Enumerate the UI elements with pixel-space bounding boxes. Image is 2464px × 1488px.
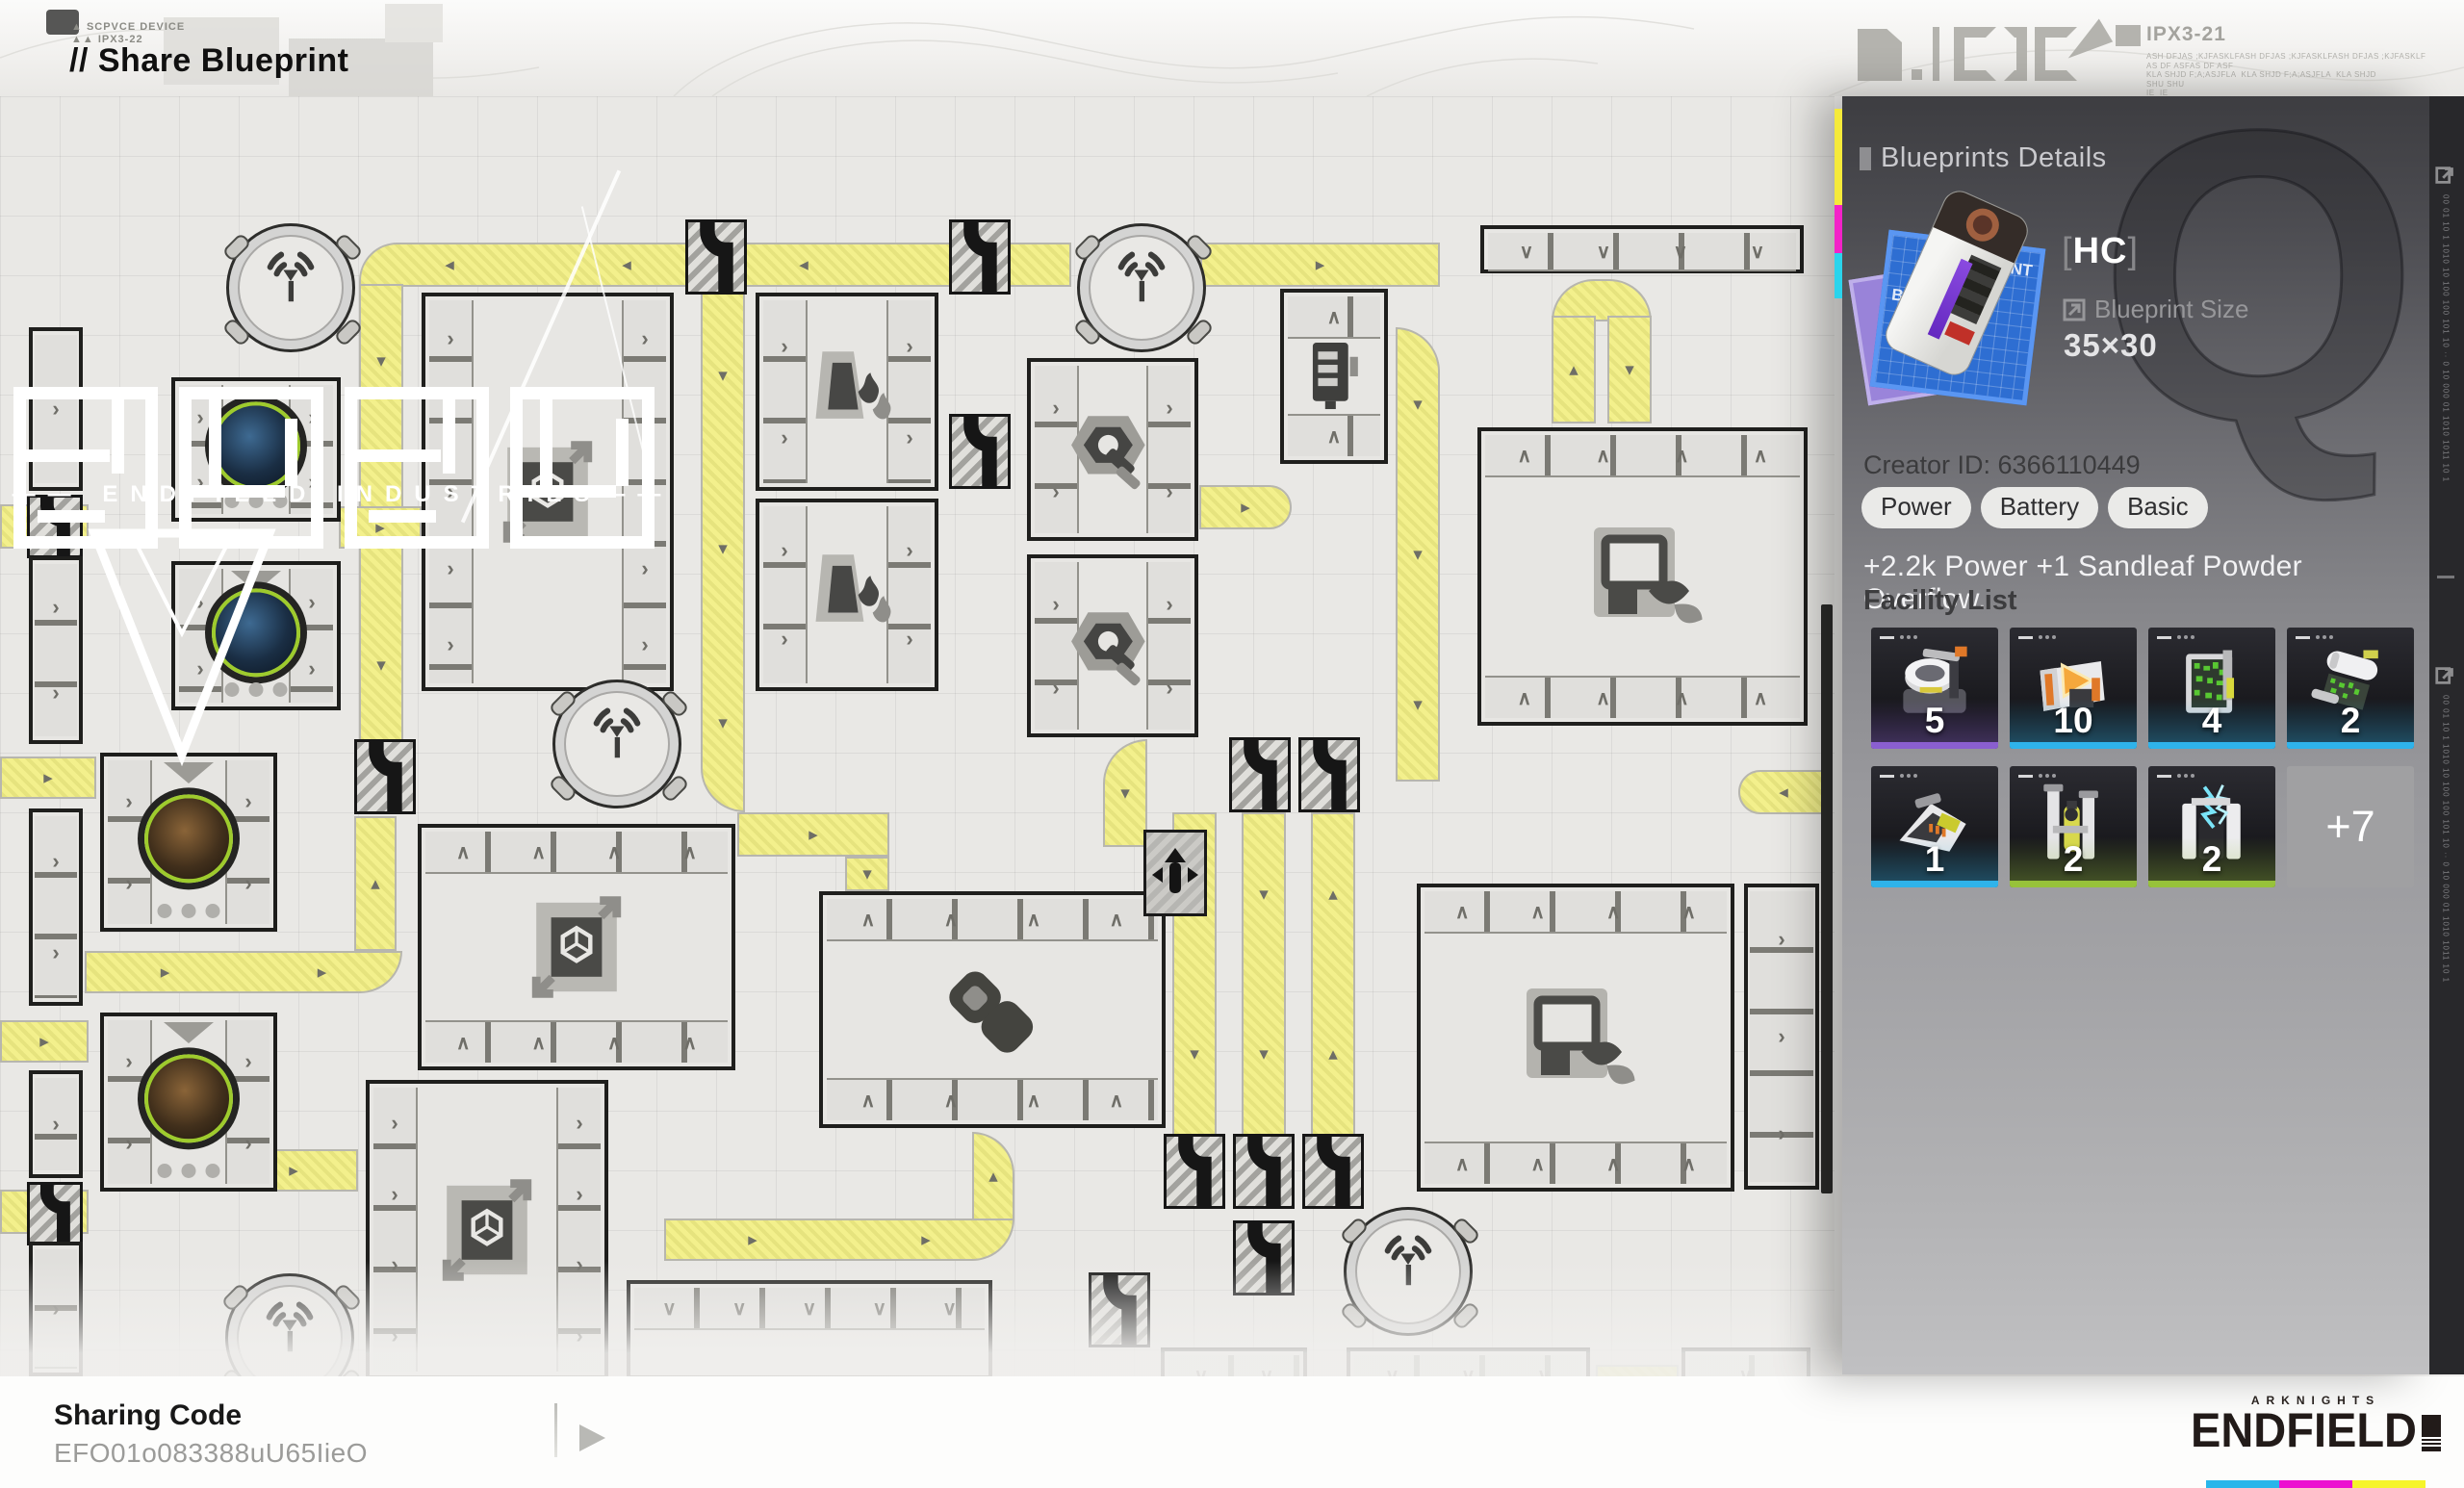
port-chevron-icon: › [1778,1121,1784,1146]
ore-miner: ›››› [100,1013,277,1192]
conveyor-belt: ▾▾▾ [1396,327,1440,782]
factory-building: ∨∨ [1161,1347,1307,1376]
port-chevron-icon: › [196,656,203,681]
tower-foot-icon [220,1282,250,1312]
belt-arrow-icon: ◂ [622,254,631,276]
port-chevron-icon: › [125,871,132,896]
power-tower [225,1273,354,1376]
port-chevron-icon: › [576,1182,582,1207]
belt-arrow-icon: ▾ [718,365,728,387]
belt-arrow-icon: ▾ [718,538,728,560]
port-chevron-icon: ∧ [1027,908,1041,932]
port-chevron-icon: ∧ [1327,424,1342,449]
export-icon [2434,664,2457,687]
port-chevron-icon: ∧ [607,840,622,864]
port-chevron-icon: ∨ [1194,1364,1209,1377]
port-chevron-icon: › [52,397,59,422]
port-chevron-icon: › [1778,927,1784,952]
port-chevron-icon: ∨ [662,1296,677,1321]
tag-row: PowerBatteryBasic [1861,487,2208,528]
port-chevron-icon: › [447,402,453,427]
port-chevron-icon: › [576,1323,582,1348]
belt-arrow-icon: ▸ [748,1229,757,1251]
topbar-code: IPX3-21 [2146,23,2425,46]
port-chevron-icon: › [196,470,203,495]
divider-bar-icon [1933,27,1939,81]
canister-tag-icon [1944,321,1975,346]
canvas-scrollbar[interactable] [1821,604,1833,1193]
dot-icon [1912,69,1922,80]
sorter-arrows-icon [1146,833,1204,913]
facility-tile-growth-wall[interactable]: 4 [2148,628,2275,749]
splitter-s-icon [1301,740,1357,809]
antenna-icon [254,247,327,321]
splitter-s-icon [1305,1137,1361,1206]
factory-building: › [29,327,83,491]
antenna-icon [253,1297,326,1371]
facility-tile-battery-post[interactable]: 2 [2010,766,2137,887]
ore-node-brown [144,1054,233,1142]
footer-divider [554,1403,557,1457]
belt-arrow-icon: ◂ [445,254,454,276]
splitter-s-icon [357,742,413,811]
port-chevron-icon: › [308,405,315,430]
tag-pill-basic: Basic [2108,487,2208,528]
colorbar-segment [2279,1480,2352,1488]
port-chevron-icon: ∨ [1461,1364,1476,1377]
tower-foot-icon [221,317,251,346]
factory-building: ›› [29,808,83,1006]
belt-splitter [1089,1272,1150,1347]
belt-arrow-icon: ▴ [1328,884,1338,906]
conveyor-belt: ▾ [1607,316,1652,423]
building-port-row: ∨∨∨ [1354,1355,1582,1376]
facility-count: 10 [2010,701,2137,741]
port-chevron-icon: ∧ [944,908,959,932]
splitter-s-icon [30,498,80,555]
tower-foot-icon [659,773,689,803]
facility-list-title: Facility List [1863,585,2017,617]
tower-foot-icon [1072,317,1102,346]
creator-id: Creator ID: 6366110449 [1863,450,2141,480]
port-chevron-icon: ∧ [1027,1089,1041,1113]
tile-accent-strip [2010,742,2137,749]
cube-icon [434,1177,540,1283]
port-chevron-icon: ∧ [1675,686,1689,710]
building-port-row: ∧∧∧∧ [1424,891,1727,934]
port-chevron-icon: ∧ [1455,1152,1470,1176]
port-chevron-icon: › [641,632,648,657]
building-port-row: ∧∧∧∧ [1485,676,1800,718]
port-chevron-icon: › [125,1131,132,1156]
export-icon [2434,164,2457,187]
port-chevron-icon: ∧ [531,1031,546,1055]
belt-arrow-icon: ▾ [862,863,872,885]
building-port-row: ∧∧∧∧ [827,899,1158,941]
belt-sorter [1143,830,1207,916]
miner-dots-icon [225,494,288,508]
pencil-nub-icon [2116,25,2141,46]
port-chevron-icon: › [308,656,315,681]
edge-dash-icon [2437,576,2454,578]
leaf-icon [1503,965,1648,1110]
belt-arrow-icon: ▾ [1625,359,1634,381]
factory-building: ›››› [756,499,938,691]
facility-count: 2 [2148,839,2275,880]
building-port-row: ∨ [1689,1355,1803,1376]
factory-building: ›››› [756,293,938,491]
tag-pill-power: Power [1861,487,1971,528]
miner-dots-icon [158,1164,220,1178]
conveyor-belt: ▸▸ [85,951,402,993]
size-label: Blueprint Size [2094,295,2248,324]
factory-building: ›› [29,556,83,744]
factory-building: ›››››››››› [422,293,674,691]
facility-more-tile[interactable]: +7 [2287,766,2414,887]
port-chevron-icon: › [906,538,912,563]
factory-building: ∧∧∧∧∧∧∧∧ [1477,427,1808,726]
port-chevron-icon: › [781,627,787,652]
belt-splitter [1302,1134,1364,1209]
conveyor-belt: ▴ [1552,316,1596,423]
port-chevron-icon: ∧ [456,1031,471,1055]
power-tower [1344,1207,1473,1336]
ore-miner: ›››› [171,561,341,710]
port-chevron-icon: › [391,1323,398,1348]
port-chevron-icon: ∨ [732,1296,747,1321]
port-chevron-icon: ∧ [1110,1089,1124,1113]
belt-arrow-icon: ▸ [43,767,53,789]
conveyor-belt: ▴ [972,1132,1014,1220]
port-chevron-icon: ∧ [1754,686,1768,710]
tower-foot-icon [332,1367,362,1376]
port-chevron-icon: › [447,479,453,504]
port-chevron-icon: ∧ [1518,444,1532,468]
port-chevron-icon: ∧ [861,1089,876,1113]
port-chevron-icon: › [244,789,251,814]
miner-dots-icon [158,904,220,918]
antenna-icon [580,704,654,777]
port-chevron-icon: › [196,405,203,430]
port-chevron-icon: › [641,556,648,581]
splitter-s-icon [952,222,1008,292]
factory-building: ›››››››› [366,1080,608,1376]
factory-building: › [29,1242,83,1376]
battery-icon [1290,332,1378,421]
factory-building: ∧∧∧∧∧∧∧∧ [418,824,735,1070]
tower-foot-icon [548,688,577,718]
accent-strip-magenta [1835,205,1842,253]
port-chevron-icon: ∧ [531,840,546,864]
facility-tile-refiner[interactable]: 1 [1871,766,1998,887]
edge-binary-text: 00 01 10 1 1010 10 100 100 101 10 ·· 0 1… [2442,695,2451,983]
tower-foot-icon [1450,1216,1480,1245]
port-chevron-icon: › [52,940,59,965]
port-chevron-icon: ∧ [607,1031,622,1055]
port-chevron-icon: ∧ [1681,1152,1696,1176]
port-chevron-icon: ∨ [1520,240,1534,264]
belt-arrow-icon: ▸ [39,1031,49,1053]
belt-arrow-icon: ▾ [1259,1043,1269,1065]
factory-building: › [29,1070,83,1178]
building-port-row: ∧∧∧∧ [827,1078,1158,1120]
belt-arrow-icon: ▾ [376,350,386,372]
belt-splitter [949,219,1011,295]
belt-splitter [27,1182,83,1245]
facility-tile-ore-crusher[interactable]: 5 [1871,628,1998,749]
splitter-s-icon [1091,1275,1147,1345]
header-bullet-icon [1860,147,1871,170]
factory-building: ∧∧∧∧∧∧∧∧ [1417,884,1734,1192]
port-chevron-icon: ∧ [1675,444,1689,468]
cube-icon [495,439,601,545]
belt-arrow-icon: ▴ [1328,1043,1338,1065]
facility-tile-power-coil[interactable]: 2 [2148,766,2275,887]
building-port-column: › [35,1249,77,1369]
port-chevron-icon: › [641,479,648,504]
belt-splitter [1229,737,1291,812]
tower-foot-icon [332,1282,362,1312]
canister-ring-icon [1961,203,2004,246]
facility-count: 2 [2010,839,2137,880]
splitter-s-icon [30,1185,80,1243]
port-chevron-icon: › [641,326,648,351]
conveyor-belt: ▸ [737,812,889,857]
port-chevron-icon: › [308,590,315,615]
port-chevron-icon: › [391,1252,398,1277]
belt-splitter [354,739,416,814]
building-port-row: ∧∧∧∧ [1485,435,1800,477]
building-port-row: ∧∧∧∧ [1424,1142,1727,1184]
logo-endfield: ENDFIELD [2191,1408,2417,1453]
power-tower [1077,223,1206,352]
belt-arrow-icon: ▴ [371,873,380,895]
port-chevron-icon: ∨ [1751,240,1765,264]
building-port-column: ›››› [556,1088,601,1372]
building-port-column: ›› [35,564,77,736]
ore-miner: ›››› [171,377,341,522]
footer: Sharing Code EFO01o083388uU65IieO ARKNIG… [0,1376,2464,1488]
building-port-row: ∧∧∧∧ [425,832,728,874]
building-port-column: ››› [1750,891,1813,1182]
factory-building: ››› [1744,884,1819,1190]
building-port-column: ›››› [373,1088,418,1372]
conveyor-belt: ▸▸ [664,1219,1014,1261]
splitter-s-icon [688,222,744,292]
sharing-code-label: Sharing Code [54,1399,242,1432]
port-chevron-icon: › [308,470,315,495]
port-chevron-icon: ∧ [1530,900,1545,924]
edge-binary-text: 00 01 10 1 1010 10 100 100 101 10 ·· 0 1… [2442,194,2451,482]
port-chevron-icon: › [781,538,787,563]
port-chevron-icon: ∧ [682,840,697,864]
port-chevron-icon: › [447,326,453,351]
conveyor-belt: ▾ [1103,739,1147,847]
logo-square-icon [2422,1415,2441,1451]
port-chevron-icon: › [391,1111,398,1136]
belt-arrow-icon: ▾ [1413,394,1423,416]
facility-grid: 51042122+7 [1871,628,2414,887]
conveyor-belt: ◂ [1738,770,1829,814]
port-chevron-icon: › [244,1049,251,1074]
tower-foot-icon [659,688,689,718]
facility-count: 4 [2148,701,2275,741]
port-chevron-icon: › [1778,1024,1784,1049]
factory-building: ∨ [1681,1347,1810,1376]
port-chevron-icon: ∧ [1327,305,1342,329]
belt-arrow-icon: ▸ [161,962,170,984]
belt-arrow-icon: ▸ [1241,497,1250,519]
power-tower [552,680,681,808]
panel-edge-rail: 00 01 10 1 1010 10 100 100 101 10 ·· 0 1… [2429,96,2464,1374]
conveyor-belt: ◂ [1596,1365,1679,1376]
belt-arrow-icon: ▸ [318,962,327,984]
size-icon [2062,297,2087,322]
building-port-row: ∧∧∧∧ [425,1020,728,1063]
port-chevron-icon: ∨ [1385,1364,1399,1377]
facility-tile-uploader[interactable]: 10 [2010,628,2137,749]
belt-arrow-icon: ▸ [1316,254,1325,276]
belt-arrow-icon: ▸ [808,824,818,846]
port-chevron-icon: ∨ [1260,1364,1274,1377]
blueprint-details-panel: Q Blueprints Details BNT [HC] Blueprint … [1842,96,2429,1374]
port-chevron-icon: › [52,849,59,874]
port-chevron-icon: › [906,627,912,652]
port-chevron-icon: ∧ [861,908,876,932]
port-chevron-icon: ∧ [944,1089,959,1113]
flame-icon [791,336,903,448]
document-icon [1858,29,1902,81]
port-chevron-icon: › [576,1111,582,1136]
tower-foot-icon [1450,1300,1480,1330]
building-port-column: › [35,335,77,483]
glyph-block-icon [1954,27,1996,81]
belt-arrow-icon: ▾ [1259,884,1269,906]
port-chevron-icon: › [641,402,648,427]
tower-foot-icon [1339,1300,1369,1330]
splitter-s-icon [1167,1137,1222,1206]
port-chevron-icon: ∨ [872,1296,886,1321]
port-chevron-icon: › [244,871,251,896]
conveyor-belt: ▴ [354,816,397,951]
port-chevron-icon: ∧ [1110,908,1124,932]
belt-arrow-icon: ▸ [921,1229,931,1251]
miner-dots-icon [225,682,288,697]
tower-foot-icon [1339,1216,1369,1245]
blueprint-canvas[interactable]: ◂◂◂◂▸▾▾▾▴▸▸▸▸▸▸▸▾▾▾▸▾▾▾▾▸▴▾▾▾▾▾▾▴▴▸▸▴◂◂▸… [0,96,1835,1376]
port-chevron-icon: ∧ [1681,900,1696,924]
colorbar-segment [2206,1480,2279,1488]
tile-accent-strip [1871,742,1998,749]
building-port-column: › [35,1078,77,1170]
share-play-button[interactable] [579,1424,605,1451]
facility-count: 1 [1871,839,1998,880]
antenna-icon [1105,247,1178,321]
port-chevron-icon: › [196,590,203,615]
splitter-s-icon [1232,740,1288,809]
belt-arrow-icon: ◂ [1779,782,1788,804]
facility-tile-flattener[interactable]: 2 [2287,628,2414,749]
building-port-row: ∨∨∨∨ [1488,233,1796,271]
port-chevron-icon: ∧ [1606,900,1621,924]
facility-count: 2 [2287,701,2414,741]
ore-miner: ›››› [100,753,277,932]
port-chevron-icon: › [125,789,132,814]
belt-arrow-icon: ▾ [718,712,728,734]
splitter-s-icon [1236,1223,1292,1293]
logo-colorbar [2206,1480,2425,1488]
blueprint-item-image: BNT [1856,200,2048,407]
accent-strip-cyan [1835,253,1842,298]
belt-arrow-icon: ▾ [1413,694,1423,716]
port-chevron-icon: › [244,1131,251,1156]
blueprint-name: [HC] [2062,231,2139,272]
tower-foot-icon [548,773,577,803]
leaf-icon [1571,504,1715,649]
port-chevron-icon: › [447,632,453,657]
conveyor-belt: ▸ [1199,485,1292,529]
belt-splitter [27,495,83,558]
conveyor-belt: ▴▴ [1311,812,1355,1136]
port-chevron-icon: › [52,595,59,620]
port-chevron-icon: › [906,334,912,359]
topbar: ▲ SCPVCE DEVICE ▲▲ IPX3-22 // Share Blue… [0,0,2464,96]
belt-arrow-icon: ◂ [799,254,808,276]
port-chevron-icon: ∧ [456,840,471,864]
port-chevron-icon: ∧ [1596,444,1610,468]
port-chevron-icon: ∧ [1455,900,1470,924]
belt-arrow-icon: ▾ [1120,782,1130,805]
tower-foot-icon [220,1367,250,1376]
factory-building: ›››› [1027,554,1198,737]
port-chevron-icon: › [781,334,787,359]
conveyor-belt: ▸ [1200,243,1440,287]
port-chevron-icon: ∨ [1674,240,1688,264]
pill-icon [931,948,1054,1071]
device-label: ▲ SCPVCE DEVICE [71,21,185,34]
building-port-column: ››››› [622,300,666,683]
tile-accent-strip [2010,881,2137,887]
belt-arrow-icon: ▾ [376,654,386,677]
factory-building: ›››› [1027,358,1198,541]
panel-title: Blueprints Details [1881,142,2107,174]
port-chevron-icon: ∧ [1530,1152,1545,1176]
accent-strip-yellow [1835,109,1842,205]
port-chevron-icon: ∨ [803,1296,817,1321]
belt-arrow-icon: ▸ [375,517,385,539]
conveyor-belt: ▾ [845,857,889,891]
port-chevron-icon: ∨ [1597,240,1611,264]
port-chevron-icon: › [125,1049,132,1074]
port-chevron-icon: ∨ [1537,1364,1552,1377]
building-port-row: ∨∨ [1168,1355,1299,1376]
ore-node-blue [212,588,300,677]
gear-icon [1057,590,1168,702]
factory-building: ∧∧ [1280,289,1388,464]
port-chevron-icon: › [447,556,453,581]
factory-building: ∧∧∧∧∧∧∧∧ [819,891,1166,1128]
conveyor-belt: ▸ [0,757,96,799]
port-chevron-icon: › [391,1182,398,1207]
topbar-decor: IPX3-21 ASH DFJAS ;KJFASKLFASH DFJAS ;KJ… [1858,21,2454,94]
endfield-logo: ARKNIGHTS ENDFIELD [2206,1394,2425,1451]
cube-icon [524,894,629,1000]
belt-splitter [685,219,747,295]
tower-foot-icon [221,232,251,262]
tower-foot-icon [333,232,363,262]
port-chevron-icon: ∧ [682,1031,697,1055]
port-chevron-icon: ∨ [1739,1364,1754,1377]
